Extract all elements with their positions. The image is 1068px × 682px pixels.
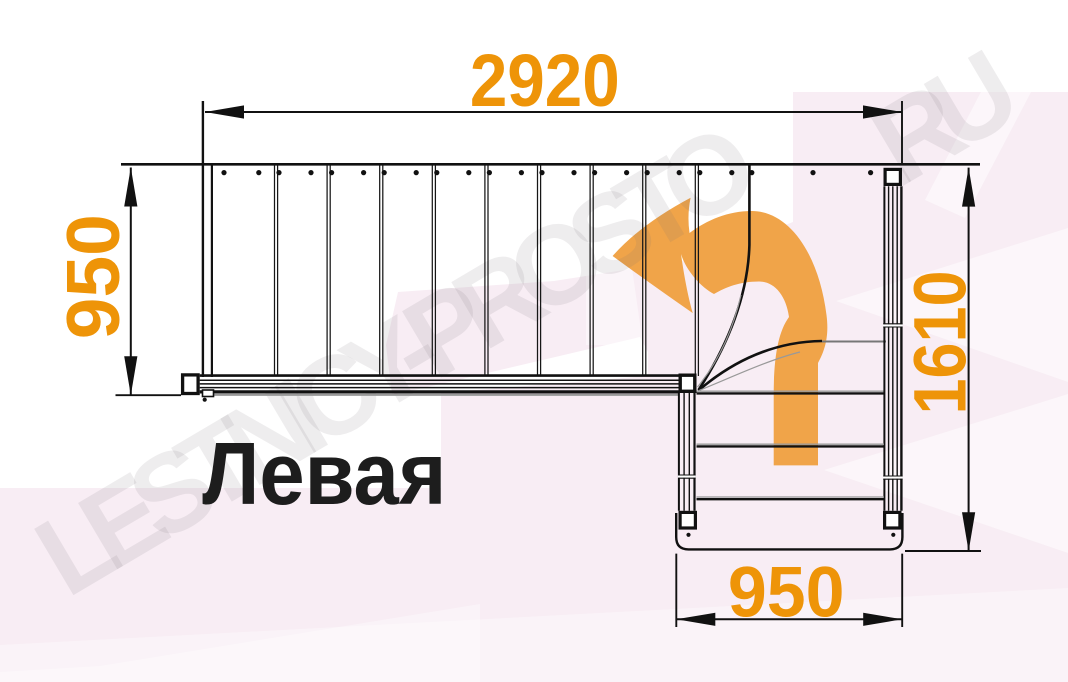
svg-text:Левая: Левая bbox=[202, 425, 446, 524]
svg-text:950: 950 bbox=[51, 214, 135, 339]
svg-text:1610: 1610 bbox=[898, 270, 981, 414]
svg-text:2920: 2920 bbox=[470, 40, 620, 123]
svg-text:950: 950 bbox=[728, 552, 845, 632]
